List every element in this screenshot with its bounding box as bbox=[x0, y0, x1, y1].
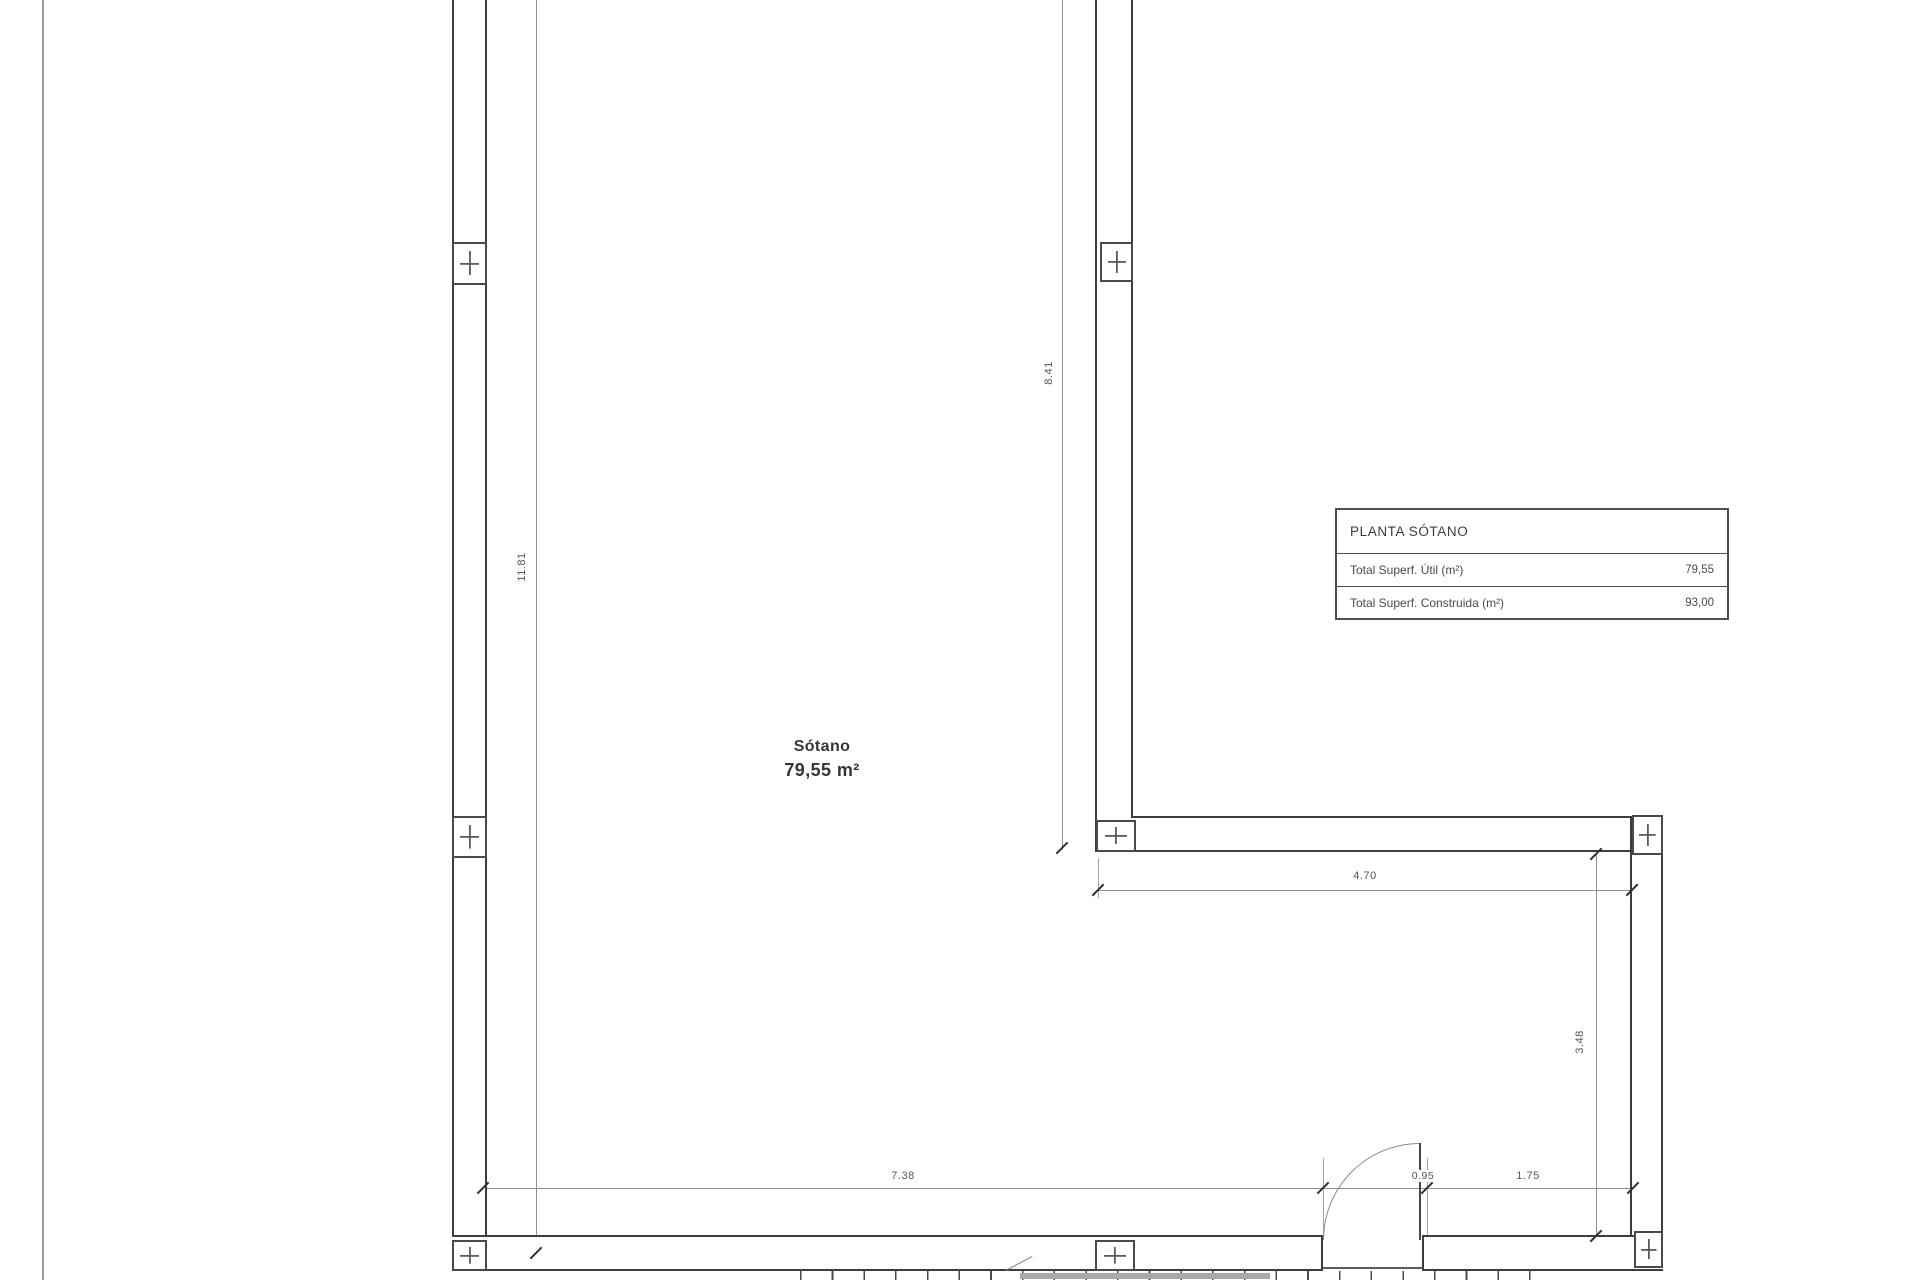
room-name: Sótano bbox=[722, 738, 922, 756]
extension-line bbox=[1098, 858, 1099, 898]
wall-left bbox=[452, 0, 487, 1271]
dimension-label-top-width: 4.70 bbox=[1325, 870, 1405, 882]
area-summary-table: PLANTA SÓTANO Total Superf. Útil (m²) 79… bbox=[1335, 508, 1729, 620]
row-label: Total Superf. Útil (m²) bbox=[1350, 563, 1463, 577]
floor-plan-sheet: 11.81 8.41 4.70 3.48 7.38 0.95 1.75 Sóta… bbox=[0, 0, 1920, 1280]
room-area: 79,55 m² bbox=[722, 760, 922, 781]
column-marker bbox=[1100, 242, 1133, 282]
dimension-label-bottom-right: 1.75 bbox=[1488, 1170, 1568, 1182]
bottom-gray-bar bbox=[1020, 1273, 1270, 1279]
door-threshold bbox=[1323, 1267, 1423, 1269]
dimension-label-left-height: 11.81 bbox=[516, 541, 528, 593]
door-swing-arc bbox=[1323, 1143, 1420, 1240]
table-title: PLANTA SÓTANO bbox=[1337, 510, 1727, 554]
column-marker bbox=[452, 816, 487, 858]
column-marker bbox=[1632, 815, 1663, 855]
row-value: 79,55 bbox=[1685, 564, 1714, 576]
dimension-label-bottom-left: 7.38 bbox=[863, 1170, 943, 1182]
wall-bottom-left bbox=[452, 1235, 1323, 1271]
row-label: Total Superf. Construida (m²) bbox=[1350, 596, 1504, 610]
dimension-line-right-height bbox=[1596, 853, 1597, 1237]
dimension-label-door-width: 0.95 bbox=[1398, 1170, 1448, 1182]
room-label: Sótano 79,55 m² bbox=[722, 738, 922, 781]
wall-middle bbox=[1095, 0, 1133, 852]
dimension-label-mid-height: 8.41 bbox=[1043, 347, 1055, 399]
table-row: Total Superf. Construida (m²) 93,00 bbox=[1337, 587, 1727, 619]
column-marker bbox=[1634, 1231, 1663, 1268]
wall-bottom-right bbox=[1422, 1235, 1663, 1271]
wall-upper-horizontal bbox=[1131, 816, 1663, 852]
row-value: 93,00 bbox=[1685, 597, 1714, 609]
table-row: Total Superf. Útil (m²) 79,55 bbox=[1337, 554, 1727, 587]
dimension-line-left-height bbox=[536, 0, 537, 1260]
dimension-line-bottom bbox=[483, 1188, 1633, 1189]
column-marker bbox=[1096, 820, 1136, 852]
column-marker bbox=[1095, 1240, 1135, 1271]
dimension-line-mid-height bbox=[1062, 0, 1063, 850]
column-marker bbox=[452, 1240, 487, 1271]
dimension-line-top-width bbox=[1098, 890, 1632, 891]
sheet-left-border bbox=[42, 0, 44, 1280]
dimension-label-right-height: 3.48 bbox=[1574, 1016, 1586, 1068]
column-marker bbox=[452, 242, 487, 285]
